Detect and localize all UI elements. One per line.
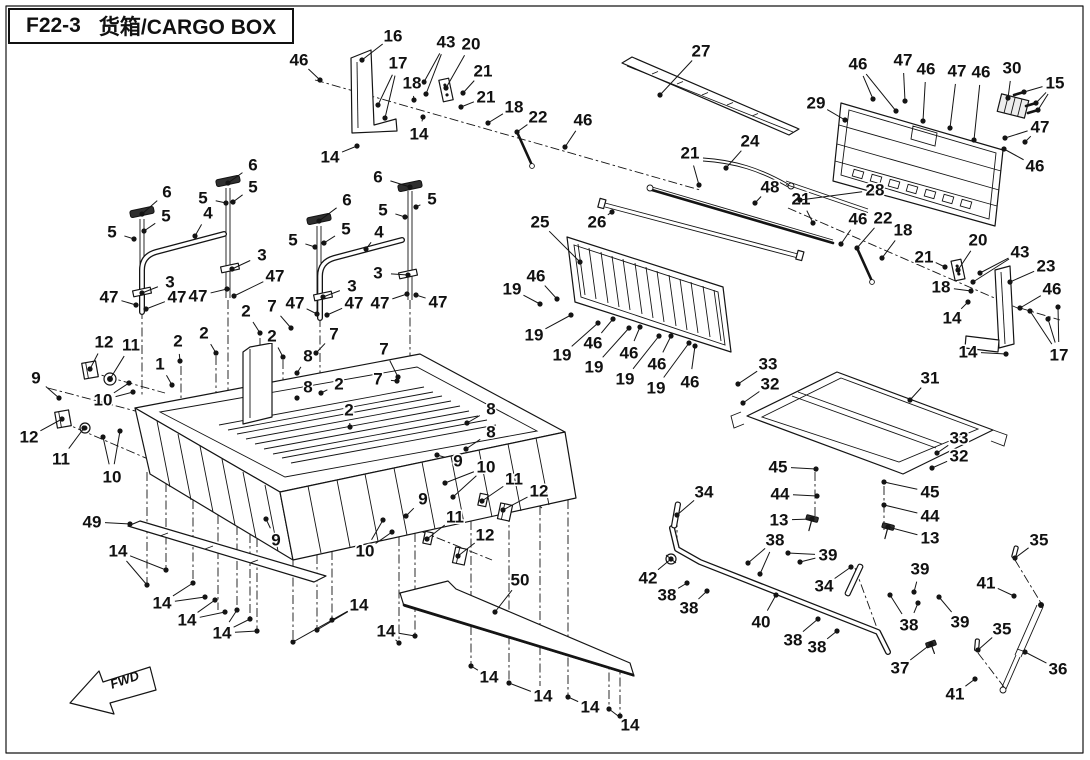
callout-38: 38 bbox=[900, 616, 919, 635]
callout-19: 19 bbox=[616, 370, 635, 389]
fastener-dot bbox=[797, 559, 802, 564]
callout-24: 24 bbox=[741, 132, 760, 151]
callout-10: 10 bbox=[356, 542, 375, 561]
callout-12: 12 bbox=[530, 482, 549, 501]
leader-line bbox=[884, 482, 917, 489]
callout-7: 7 bbox=[267, 297, 276, 316]
leader-line bbox=[767, 595, 776, 611]
fastener-dot bbox=[885, 524, 890, 529]
fastener-dot bbox=[907, 397, 912, 402]
callout-49: 49 bbox=[83, 513, 102, 532]
fastener-dot bbox=[202, 594, 207, 599]
leader-line bbox=[1038, 94, 1048, 110]
fastener-dot bbox=[975, 647, 980, 652]
callout-47: 47 bbox=[345, 294, 364, 313]
fastener-dot bbox=[842, 117, 847, 122]
callout-50: 50 bbox=[511, 571, 530, 590]
fastener-dot bbox=[1022, 139, 1027, 144]
leader-line bbox=[974, 85, 980, 140]
callout-26: 26 bbox=[588, 213, 607, 232]
fastener-dot bbox=[955, 267, 960, 272]
callout-14: 14 bbox=[350, 596, 369, 615]
callout-43: 43 bbox=[1011, 243, 1030, 262]
callout-7: 7 bbox=[379, 340, 388, 359]
fastener-dot bbox=[143, 306, 148, 311]
callout-18: 18 bbox=[894, 221, 913, 240]
callout-1: 1 bbox=[155, 355, 164, 374]
leader-line bbox=[545, 315, 571, 329]
fastener-dot bbox=[834, 628, 839, 633]
part-strip-50 bbox=[400, 581, 634, 676]
fastener-dot bbox=[407, 184, 412, 189]
callout-5: 5 bbox=[378, 201, 387, 220]
fastener-dot bbox=[810, 220, 815, 225]
fastener-dot bbox=[254, 628, 259, 633]
fastener-dot bbox=[809, 516, 814, 521]
fastener-dot bbox=[696, 182, 701, 187]
leader-line bbox=[692, 346, 695, 369]
leader-line bbox=[748, 548, 765, 563]
fastener-dot bbox=[610, 316, 615, 321]
fastener-dot bbox=[107, 376, 112, 381]
callout-14: 14 bbox=[621, 716, 640, 735]
fastener-dot bbox=[606, 706, 611, 711]
fastener-dot bbox=[657, 92, 662, 97]
fastener-dot bbox=[56, 395, 61, 400]
callout-28: 28 bbox=[866, 181, 885, 200]
fastener-dot bbox=[234, 607, 239, 612]
fastener-dot bbox=[704, 588, 709, 593]
leader-line bbox=[173, 583, 193, 596]
leader-line bbox=[565, 131, 576, 147]
fastener-dot bbox=[848, 564, 853, 569]
fastener-dot bbox=[911, 589, 916, 594]
fastener-dot bbox=[131, 236, 136, 241]
leader-line bbox=[998, 588, 1014, 596]
callout-20: 20 bbox=[462, 35, 481, 54]
leader-line bbox=[1020, 296, 1041, 308]
fastener-dot bbox=[735, 381, 740, 386]
callout-4: 4 bbox=[374, 223, 384, 242]
fastener-dot bbox=[854, 245, 859, 250]
callout-14: 14 bbox=[153, 594, 172, 613]
callout-14: 14 bbox=[178, 611, 197, 630]
fastener-dot bbox=[263, 516, 268, 521]
leader-line bbox=[738, 371, 757, 384]
fastener-dot bbox=[294, 395, 299, 400]
callout-3: 3 bbox=[373, 264, 382, 283]
fastener-dot bbox=[389, 529, 394, 534]
callout-37: 37 bbox=[891, 659, 910, 678]
leader-line bbox=[116, 392, 133, 397]
fastener-dot bbox=[177, 358, 182, 363]
callout-14: 14 bbox=[480, 668, 499, 687]
fastener-dot bbox=[81, 425, 86, 430]
callout-8: 8 bbox=[303, 378, 312, 397]
fastener-dot bbox=[402, 214, 407, 219]
callout-8: 8 bbox=[486, 423, 495, 442]
callout-10: 10 bbox=[477, 458, 496, 477]
fastener-dot bbox=[257, 330, 262, 335]
callout-17: 17 bbox=[1050, 346, 1069, 365]
fastener-dot bbox=[354, 143, 359, 148]
fastener-dot bbox=[288, 325, 293, 330]
fastener-dot bbox=[434, 452, 439, 457]
fastener-dot bbox=[126, 380, 131, 385]
fastener-dot bbox=[133, 302, 138, 307]
fastener-dot bbox=[915, 600, 920, 605]
fastener-dot bbox=[838, 241, 843, 246]
callout-25: 25 bbox=[531, 213, 550, 232]
fastener-dot bbox=[514, 129, 519, 134]
fastener-dot bbox=[1027, 308, 1032, 313]
fastener-dot bbox=[468, 663, 473, 668]
fastener-dot bbox=[413, 204, 418, 209]
callout-33: 33 bbox=[759, 355, 778, 374]
callout-2: 2 bbox=[267, 327, 276, 346]
fastener-dot bbox=[455, 553, 460, 558]
fastener-dot bbox=[127, 521, 132, 526]
leader-line bbox=[793, 495, 817, 496]
callout-30: 30 bbox=[1003, 59, 1022, 78]
callout-5: 5 bbox=[248, 178, 257, 197]
fastener-dot bbox=[117, 428, 122, 433]
fastener-dot bbox=[1002, 135, 1007, 140]
fastener-dot bbox=[965, 299, 970, 304]
callout-35: 35 bbox=[1030, 531, 1049, 550]
leader-line bbox=[1005, 131, 1028, 138]
callout-47: 47 bbox=[266, 267, 285, 286]
fastener-dot bbox=[1033, 100, 1038, 105]
fastener-dot bbox=[1007, 279, 1012, 284]
fastener-dot bbox=[130, 389, 135, 394]
callout-46: 46 bbox=[849, 210, 868, 229]
callout-3: 3 bbox=[257, 246, 266, 265]
callout-38: 38 bbox=[808, 638, 827, 657]
callout-18: 18 bbox=[505, 98, 524, 117]
leader-line bbox=[198, 600, 215, 612]
fastener-dot bbox=[222, 609, 227, 614]
callout-12: 12 bbox=[476, 526, 495, 545]
callout-31: 31 bbox=[921, 369, 940, 388]
fastener-dot bbox=[421, 79, 426, 84]
part-bolts-13 bbox=[803, 515, 894, 541]
fastener-dot bbox=[814, 493, 819, 498]
leader-line bbox=[146, 302, 165, 309]
fastener-dot bbox=[213, 350, 218, 355]
leader-line bbox=[545, 286, 557, 299]
callout-43: 43 bbox=[437, 33, 456, 52]
callout-46: 46 bbox=[1026, 157, 1045, 176]
callout-14: 14 bbox=[109, 542, 128, 561]
fastener-dot bbox=[443, 85, 448, 90]
leader-line bbox=[981, 353, 1006, 354]
callout-14: 14 bbox=[581, 698, 600, 717]
fastener-dot bbox=[595, 320, 600, 325]
part-top-rail-27 bbox=[622, 57, 799, 135]
figure-title: 货箱/CARGO BOX bbox=[99, 11, 276, 41]
callout-10: 10 bbox=[103, 468, 122, 487]
callout-5: 5 bbox=[341, 220, 350, 239]
callout-45: 45 bbox=[921, 483, 940, 502]
fastener-dot bbox=[686, 340, 691, 345]
callout-38: 38 bbox=[784, 631, 803, 650]
leader-line bbox=[788, 553, 815, 554]
callout-47: 47 bbox=[894, 51, 913, 70]
fastener-dot bbox=[230, 199, 235, 204]
leader-line bbox=[663, 336, 671, 352]
fastener-dot bbox=[637, 324, 642, 329]
callout-23: 23 bbox=[1037, 257, 1056, 276]
callout-47: 47 bbox=[948, 62, 967, 81]
fastener-dot bbox=[934, 450, 939, 455]
fastener-dot bbox=[464, 420, 469, 425]
callout-46: 46 bbox=[620, 344, 639, 363]
callout-21: 21 bbox=[477, 88, 496, 107]
part-cargo-box-1 bbox=[135, 343, 576, 560]
fastener-dot bbox=[936, 594, 941, 599]
fastener-dot bbox=[169, 382, 174, 387]
fastener-dot bbox=[87, 366, 92, 371]
fastener-dot bbox=[321, 240, 326, 245]
leader-line bbox=[235, 631, 257, 632]
fastener-dot bbox=[740, 400, 745, 405]
fastener-dot bbox=[893, 108, 898, 113]
callout-9: 9 bbox=[453, 452, 462, 471]
fastener-dot bbox=[554, 296, 559, 301]
leader-line bbox=[1048, 319, 1055, 343]
fastener-dot bbox=[568, 312, 573, 317]
fastener-dot bbox=[313, 350, 318, 355]
leader-line bbox=[904, 73, 905, 101]
leader-line bbox=[293, 611, 348, 642]
fastener-dot bbox=[412, 633, 417, 638]
leader-line bbox=[234, 282, 263, 296]
callout-38: 38 bbox=[658, 586, 677, 605]
leader-line bbox=[910, 644, 931, 660]
callout-36: 36 bbox=[1049, 660, 1068, 679]
title-box: F22-3 货箱/CARGO BOX bbox=[8, 8, 294, 44]
leader-line bbox=[888, 527, 917, 535]
fastener-dot bbox=[609, 209, 614, 214]
fastener-dot bbox=[424, 536, 429, 541]
leader-line bbox=[114, 431, 120, 464]
callout-10: 10 bbox=[94, 391, 113, 410]
fastener-dot bbox=[1005, 95, 1010, 100]
callout-19: 19 bbox=[585, 358, 604, 377]
fastener-dot bbox=[212, 597, 217, 602]
callout-38: 38 bbox=[766, 531, 785, 550]
fastener-dot bbox=[59, 416, 64, 421]
leader-line bbox=[1024, 87, 1043, 92]
fastener-dot bbox=[492, 609, 497, 614]
fastener-dot bbox=[458, 104, 463, 109]
callout-39: 39 bbox=[951, 613, 970, 632]
fastener-dot bbox=[100, 434, 105, 439]
fastener-dot bbox=[224, 286, 229, 291]
part-tailgate-outer-29 bbox=[833, 103, 1003, 226]
callout-34: 34 bbox=[695, 483, 714, 502]
callout-6: 6 bbox=[373, 168, 382, 187]
fastener-dot bbox=[403, 513, 408, 518]
fastener-dot bbox=[757, 571, 762, 576]
fastener-dot bbox=[380, 517, 385, 522]
fastener-dot bbox=[316, 218, 321, 223]
fastener-dot bbox=[479, 498, 484, 503]
leader-line bbox=[743, 391, 759, 403]
callout-9: 9 bbox=[271, 531, 280, 550]
callout-47: 47 bbox=[189, 287, 208, 306]
callout-32: 32 bbox=[950, 447, 969, 466]
fastener-dot bbox=[562, 144, 567, 149]
leader-line bbox=[1030, 311, 1052, 344]
callout-33: 33 bbox=[950, 429, 969, 448]
fastener-dot bbox=[420, 114, 425, 119]
callout-42: 42 bbox=[639, 569, 658, 588]
fastener-dot bbox=[314, 311, 319, 316]
callout-5: 5 bbox=[107, 223, 116, 242]
fastener-dot bbox=[870, 96, 875, 101]
callout-14: 14 bbox=[410, 125, 429, 144]
callout-14: 14 bbox=[959, 343, 978, 362]
part-grille-30 bbox=[997, 94, 1029, 118]
leader-line bbox=[200, 612, 225, 617]
fastener-dot bbox=[294, 370, 299, 375]
fastener-dot bbox=[375, 102, 380, 107]
fastener-dot bbox=[144, 582, 149, 587]
fastener-dot bbox=[413, 292, 418, 297]
callout-29: 29 bbox=[807, 94, 826, 113]
fastener-dot bbox=[382, 115, 387, 120]
leader-line bbox=[1004, 149, 1024, 160]
fastener-dot bbox=[752, 200, 757, 205]
callout-12: 12 bbox=[95, 333, 114, 352]
callout-41: 41 bbox=[977, 574, 996, 593]
fastener-dot bbox=[506, 680, 511, 685]
callout-47: 47 bbox=[371, 294, 390, 313]
callout-8: 8 bbox=[486, 400, 495, 419]
fastener-dot bbox=[223, 200, 228, 205]
fastener-dot bbox=[902, 98, 907, 103]
fastener-dot bbox=[813, 466, 818, 471]
fastener-dot bbox=[359, 57, 364, 62]
leader-line bbox=[792, 519, 812, 520]
callout-22: 22 bbox=[529, 108, 548, 127]
callout-40: 40 bbox=[752, 613, 771, 632]
callout-11: 11 bbox=[122, 336, 140, 355]
fastener-dot bbox=[363, 246, 368, 251]
fastener-dot bbox=[1055, 304, 1060, 309]
callout-7: 7 bbox=[329, 325, 338, 344]
fastener-dot bbox=[1017, 305, 1022, 310]
leader-line bbox=[126, 561, 147, 585]
callout-47: 47 bbox=[286, 294, 305, 313]
leader-line bbox=[1058, 307, 1059, 342]
fastener-dot bbox=[928, 641, 933, 646]
callout-2: 2 bbox=[344, 401, 353, 420]
callout-9: 9 bbox=[31, 369, 40, 388]
leader-line bbox=[950, 84, 955, 128]
fastener-dot bbox=[442, 480, 447, 485]
fastener-dot bbox=[881, 479, 886, 484]
callout-45: 45 bbox=[769, 458, 788, 477]
leader-line bbox=[939, 597, 952, 612]
fastener-dot bbox=[247, 616, 252, 621]
fastener-dot bbox=[405, 272, 410, 277]
leader-line bbox=[601, 319, 613, 333]
callout-2: 2 bbox=[241, 302, 250, 321]
leader-line bbox=[760, 552, 770, 574]
callout-6: 6 bbox=[248, 156, 257, 175]
callout-14: 14 bbox=[377, 622, 396, 641]
fastener-dot bbox=[942, 264, 947, 269]
fastener-dot bbox=[626, 325, 631, 330]
fastener-dot bbox=[879, 255, 884, 260]
fastener-dot bbox=[231, 293, 236, 298]
callout-46: 46 bbox=[681, 373, 700, 392]
fastener-dot bbox=[347, 424, 352, 429]
fastener-dot bbox=[318, 390, 323, 395]
leader-line bbox=[175, 597, 205, 601]
fastener-dot bbox=[324, 312, 329, 317]
callout-6: 6 bbox=[162, 183, 171, 202]
callout-14: 14 bbox=[534, 687, 553, 706]
leader-line bbox=[791, 468, 816, 469]
leader-line bbox=[446, 55, 465, 88]
fastener-dot bbox=[773, 592, 778, 597]
leader-line bbox=[385, 76, 395, 118]
fastener-dot bbox=[723, 165, 728, 170]
fastener-dot bbox=[745, 560, 750, 565]
figure-code: F22-3 bbox=[26, 14, 81, 38]
fastener-dot bbox=[1012, 555, 1017, 560]
callout-2: 2 bbox=[334, 375, 343, 394]
leader-line bbox=[130, 556, 166, 570]
callout-14: 14 bbox=[213, 624, 232, 643]
callout-13: 13 bbox=[770, 511, 789, 530]
callout-35: 35 bbox=[993, 620, 1012, 639]
fastener-dot bbox=[163, 567, 168, 572]
fastener-dot bbox=[692, 343, 697, 348]
parts-diagram-page: F22-3 货箱/CARGO BOX bbox=[0, 0, 1090, 760]
callout-5: 5 bbox=[288, 231, 297, 250]
callout-14: 14 bbox=[943, 309, 962, 328]
fastener-dot bbox=[139, 290, 144, 295]
callout-46: 46 bbox=[527, 267, 546, 286]
fastener-dot bbox=[411, 97, 416, 102]
fastener-dot bbox=[887, 592, 892, 597]
callout-38: 38 bbox=[680, 599, 699, 618]
callout-2: 2 bbox=[199, 324, 208, 343]
leader-line bbox=[114, 383, 129, 393]
fastener-dot bbox=[968, 288, 973, 293]
leader-line bbox=[46, 387, 59, 398]
callout-47: 47 bbox=[168, 288, 187, 307]
fastener-dot bbox=[977, 270, 982, 275]
fastener-dot bbox=[312, 244, 317, 249]
callout-11: 11 bbox=[446, 508, 464, 527]
callout-7: 7 bbox=[373, 370, 382, 389]
fastener-dot bbox=[141, 228, 146, 233]
callout-11: 11 bbox=[505, 470, 523, 489]
fastener-dot bbox=[785, 550, 790, 555]
fastener-dot bbox=[320, 294, 325, 299]
callout-39: 39 bbox=[819, 546, 838, 565]
callout-11: 11 bbox=[52, 450, 70, 469]
fastener-dot bbox=[1021, 89, 1026, 94]
fastener-dot bbox=[423, 91, 428, 96]
callout-13: 13 bbox=[921, 529, 940, 548]
